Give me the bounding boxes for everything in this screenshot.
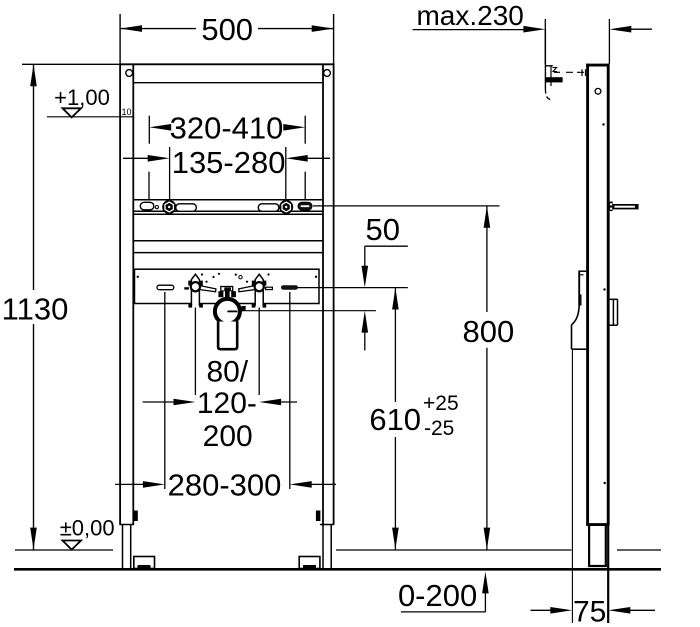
svg-text:120-: 120- — [197, 387, 257, 420]
svg-text:1130: 1130 — [2, 292, 69, 327]
svg-text:max.230: max.230 — [416, 0, 523, 31]
svg-text:+1,00: +1,00 — [54, 85, 110, 110]
svg-text:500: 500 — [201, 12, 253, 47]
svg-text:800: 800 — [463, 314, 515, 349]
svg-text:50: 50 — [366, 212, 400, 247]
svg-text:-25: -25 — [424, 417, 454, 440]
svg-text:610: 610 — [369, 402, 421, 437]
svg-text:75: 75 — [573, 596, 606, 627]
svg-text:+25: +25 — [423, 392, 459, 415]
svg-text:10: 10 — [121, 107, 131, 117]
svg-text:0-200: 0-200 — [398, 578, 477, 613]
svg-text:135-280: 135-280 — [172, 145, 286, 180]
svg-text:±0,00: ±0,00 — [60, 516, 115, 541]
svg-text:80/: 80/ — [206, 356, 248, 389]
svg-text:320-410: 320-410 — [170, 110, 284, 145]
svg-text:280-300: 280-300 — [168, 468, 282, 503]
svg-text:200: 200 — [203, 420, 253, 453]
